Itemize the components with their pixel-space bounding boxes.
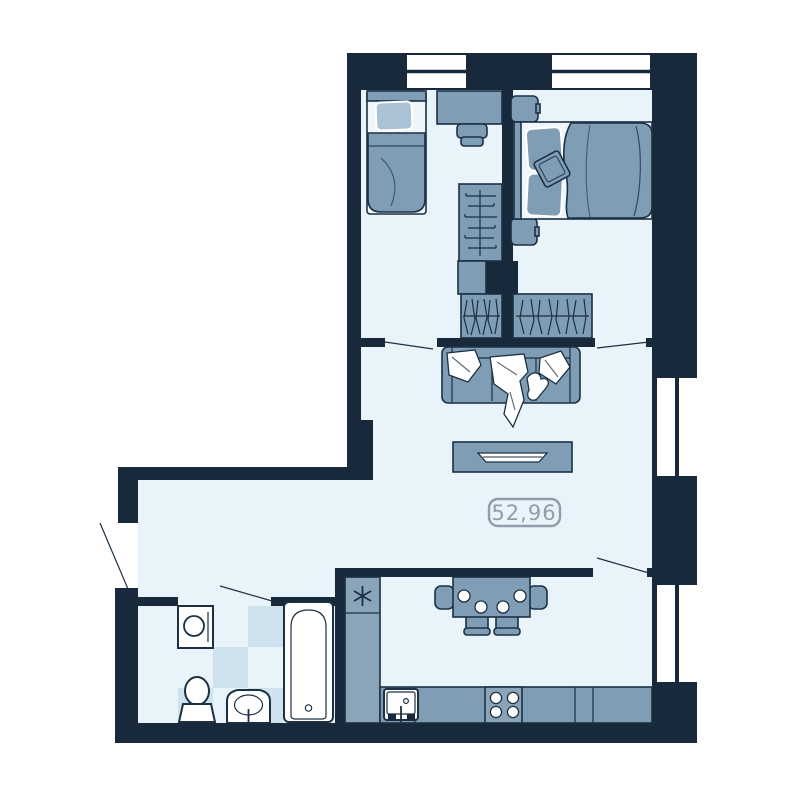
wall-hallway-top: [118, 467, 361, 480]
door-swing-icon-entry: [100, 523, 128, 589]
wardrobe-shelves-icon: [459, 184, 502, 261]
wall-left-stub: [118, 467, 138, 523]
hanging-rail-wardrobe-icon: [461, 294, 502, 338]
wall-left-lower: [115, 588, 138, 743]
area-label-text: 52,96: [491, 501, 556, 525]
double-bed-icon: [514, 122, 652, 219]
hanging-rail-wardrobe-icon: [513, 294, 592, 338]
window-icon: [657, 378, 697, 476]
snowflake-fridge-icon: [345, 577, 380, 723]
floor-plan-canvas: 52,96: [0, 0, 800, 800]
chair-icon: [435, 586, 454, 609]
plate-icon: [514, 590, 526, 602]
washbasin-icon: [227, 690, 270, 723]
wall-bottom: [115, 723, 697, 743]
floor-plan: 52,96: [0, 0, 800, 800]
nightstand-icon: [511, 96, 540, 122]
tv-stand-icon: [453, 442, 572, 472]
window-icon: [552, 55, 650, 88]
wall-kitchen-top: [335, 568, 593, 577]
plate-icon: [458, 590, 470, 602]
chair-icon: [457, 124, 487, 138]
plate-icon: [475, 601, 487, 613]
kitchen-counter: [380, 687, 652, 723]
nightstand-icon: [511, 218, 539, 245]
kitchen-sink-icon: [384, 689, 418, 722]
stove-panel: [485, 687, 522, 723]
washing-machine-icon: [178, 606, 213, 648]
single-bed-icon: [367, 91, 426, 214]
window-icon: [657, 585, 697, 682]
closet-icon: [458, 261, 486, 294]
window-icon: [407, 55, 466, 88]
wall-bedrooms-bottom-mid: [437, 338, 595, 347]
plate-icon: [497, 601, 509, 613]
wall-left-upper: [347, 53, 361, 480]
area-label: 52,96: [489, 499, 560, 526]
wall-bedroom-partition: [502, 90, 513, 347]
bathtub-icon: [284, 602, 333, 722]
wall-bathroom-top-left: [138, 597, 178, 606]
wall-bedrooms-bottom-left: [347, 338, 385, 347]
chair-icon: [528, 586, 547, 609]
wall-duct-block: [486, 261, 518, 294]
